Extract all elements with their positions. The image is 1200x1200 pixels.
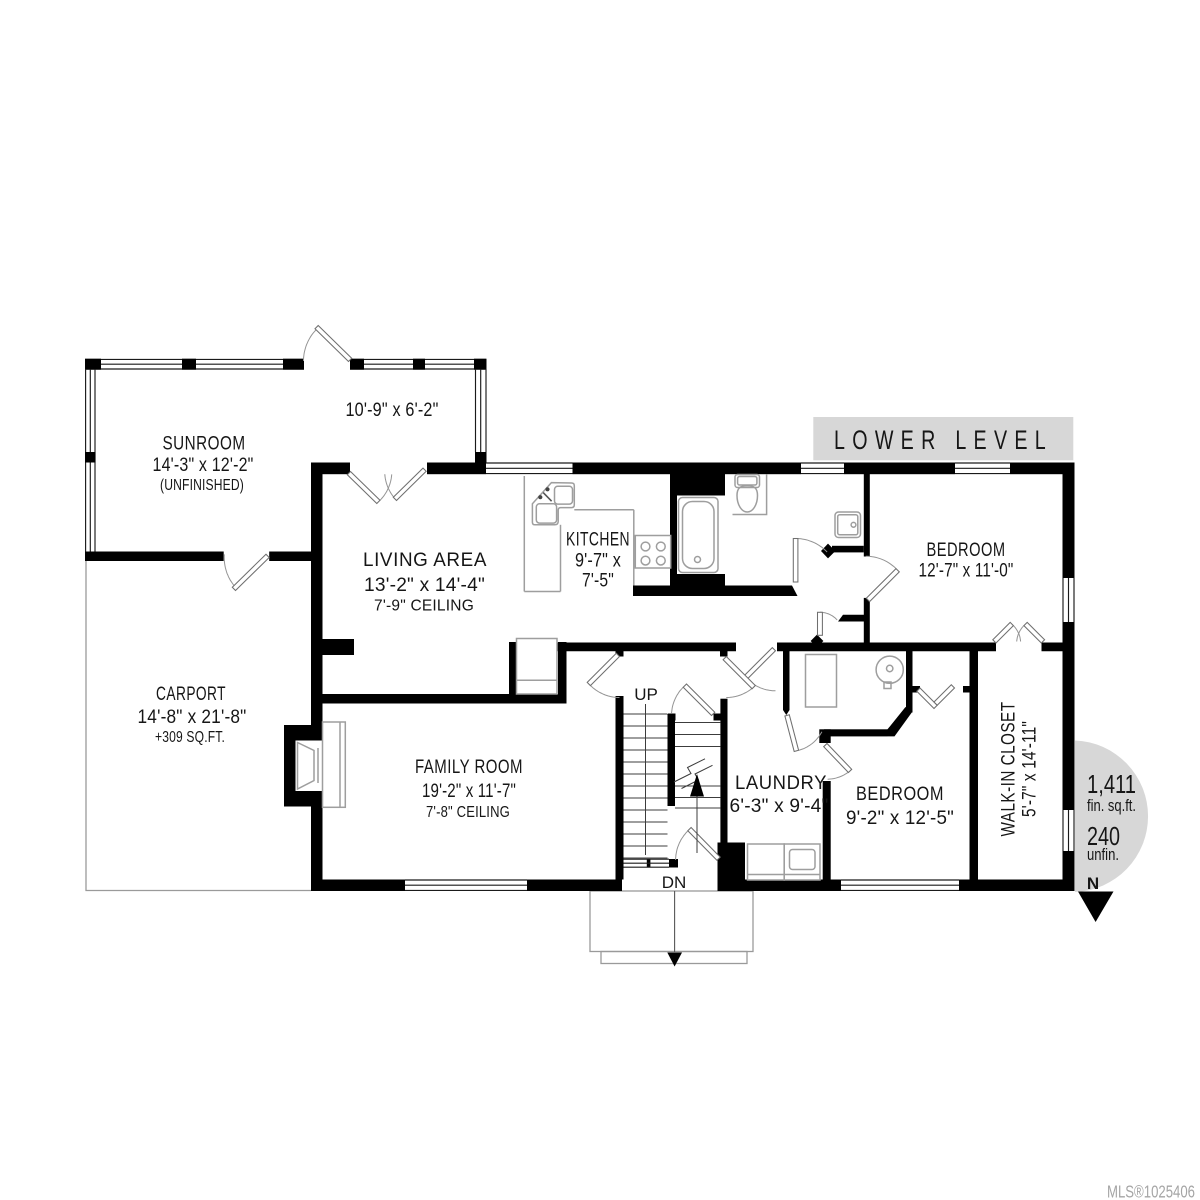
- svg-text:WALK-IN CLOSET: WALK-IN CLOSET: [999, 702, 1020, 837]
- svg-text:13'-2" x 14'-4": 13'-2" x 14'-4": [364, 575, 485, 596]
- svg-text:9'-7" x: 9'-7" x: [575, 551, 621, 572]
- svg-text:6'-3" x 9'-4": 6'-3" x 9'-4": [730, 796, 829, 817]
- svg-text:BEDROOM: BEDROOM: [927, 540, 1006, 561]
- svg-text:19'-2" x 11'-7": 19'-2" x 11'-7": [422, 781, 516, 802]
- svg-text:FAMILY ROOM: FAMILY ROOM: [415, 757, 523, 778]
- svg-text:14'-8" x 21'-8": 14'-8" x 21'-8": [138, 707, 247, 728]
- svg-text:(UNFINISHED): (UNFINISHED): [160, 477, 244, 494]
- svg-text:LOWER LEVEL: LOWER LEVEL: [834, 425, 1053, 455]
- svg-text:7'-5": 7'-5": [582, 571, 614, 592]
- svg-text:N: N: [1087, 874, 1099, 893]
- svg-text:KITCHEN: KITCHEN: [566, 530, 630, 551]
- svg-text:5'-7" x 14'-11": 5'-7" x 14'-11": [1020, 721, 1041, 817]
- svg-text:10'-9" x 6'-2": 10'-9" x 6'-2": [346, 400, 439, 421]
- svg-text:UP: UP: [634, 685, 658, 704]
- svg-text:DN: DN: [662, 873, 687, 892]
- svg-text:14'-3" x 12'-2": 14'-3" x 12'-2": [153, 455, 254, 476]
- svg-text:LIVING AREA: LIVING AREA: [363, 550, 487, 571]
- svg-text:9'-2" x 12'-5": 9'-2" x 12'-5": [846, 808, 954, 829]
- svg-text:BEDROOM: BEDROOM: [856, 784, 944, 805]
- svg-text:fin. sq.ft.: fin. sq.ft.: [1087, 796, 1136, 815]
- svg-text:7'-9" CEILING: 7'-9" CEILING: [374, 598, 474, 615]
- svg-text:+309 SQ.FT.: +309 SQ.FT.: [155, 729, 225, 746]
- svg-text:LAUNDRY: LAUNDRY: [735, 773, 827, 794]
- svg-text:unfin.: unfin.: [1087, 845, 1119, 864]
- svg-text:SUNROOM: SUNROOM: [163, 434, 246, 455]
- svg-text:1,411: 1,411: [1087, 769, 1136, 799]
- svg-text:7'-8" CEILING: 7'-8" CEILING: [426, 804, 510, 821]
- svg-text:MLS®1025406: MLS®1025406: [1107, 1182, 1195, 1200]
- svg-text:CARPORT: CARPORT: [156, 684, 226, 705]
- svg-text:12'-7" x 11'-0": 12'-7" x 11'-0": [919, 561, 1014, 582]
